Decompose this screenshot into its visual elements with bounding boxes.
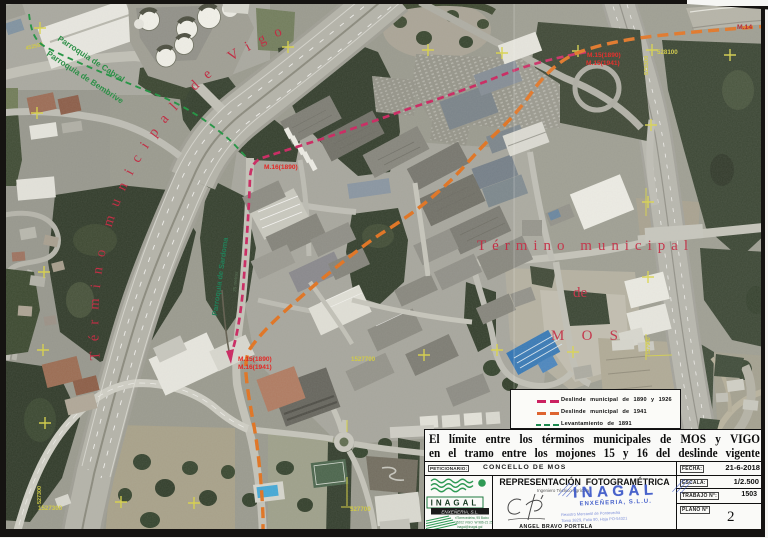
- svg-text:r/Torrecedeira, 95 Baixo: r/Torrecedeira, 95 Baixo: [455, 516, 489, 520]
- svg-text:INAGAL: INAGAL: [431, 499, 480, 508]
- svg-text:ENXEÑERIA, S.L.: ENXEÑERIA, S.L.: [441, 509, 478, 515]
- svg-text:36202 VIGO W 986-21 25 84: 36202 VIGO W 986-21 25 84: [455, 521, 492, 525]
